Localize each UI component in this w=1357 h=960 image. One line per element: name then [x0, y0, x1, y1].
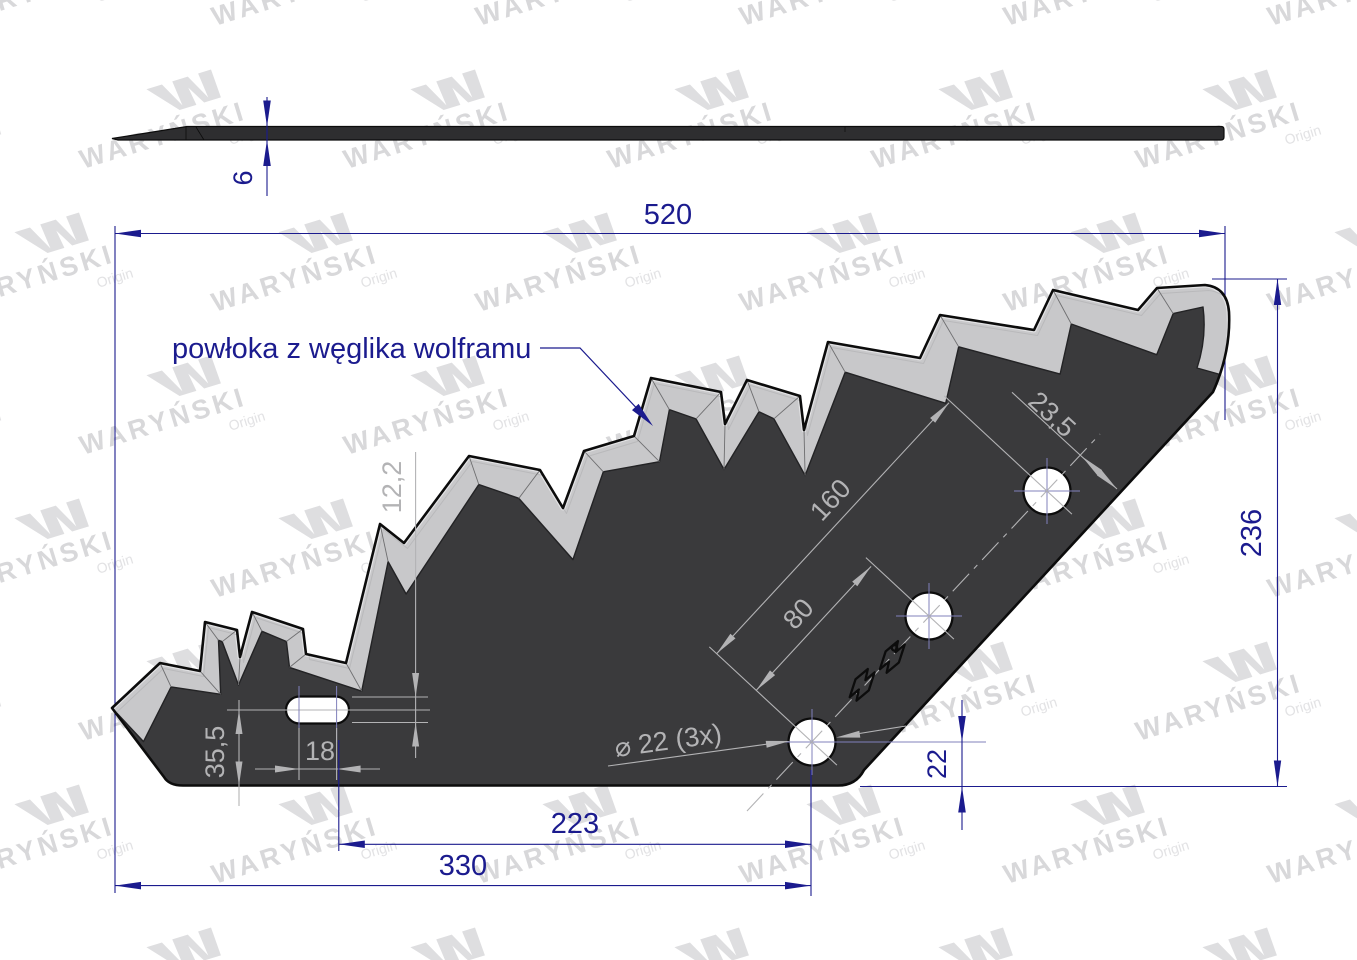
- svg-text:223: 223: [551, 808, 599, 840]
- svg-text:236: 236: [1236, 509, 1268, 557]
- svg-text:22: 22: [922, 749, 952, 779]
- svg-text:powłoka z węglika wolframu: powłoka z węglika wolframu: [172, 333, 531, 365]
- svg-text:18: 18: [305, 736, 335, 766]
- svg-text:520: 520: [644, 199, 692, 231]
- svg-text:330: 330: [439, 850, 487, 882]
- svg-text:6: 6: [228, 170, 258, 185]
- svg-text:35,5: 35,5: [200, 726, 230, 779]
- svg-text:12,2: 12,2: [377, 461, 407, 514]
